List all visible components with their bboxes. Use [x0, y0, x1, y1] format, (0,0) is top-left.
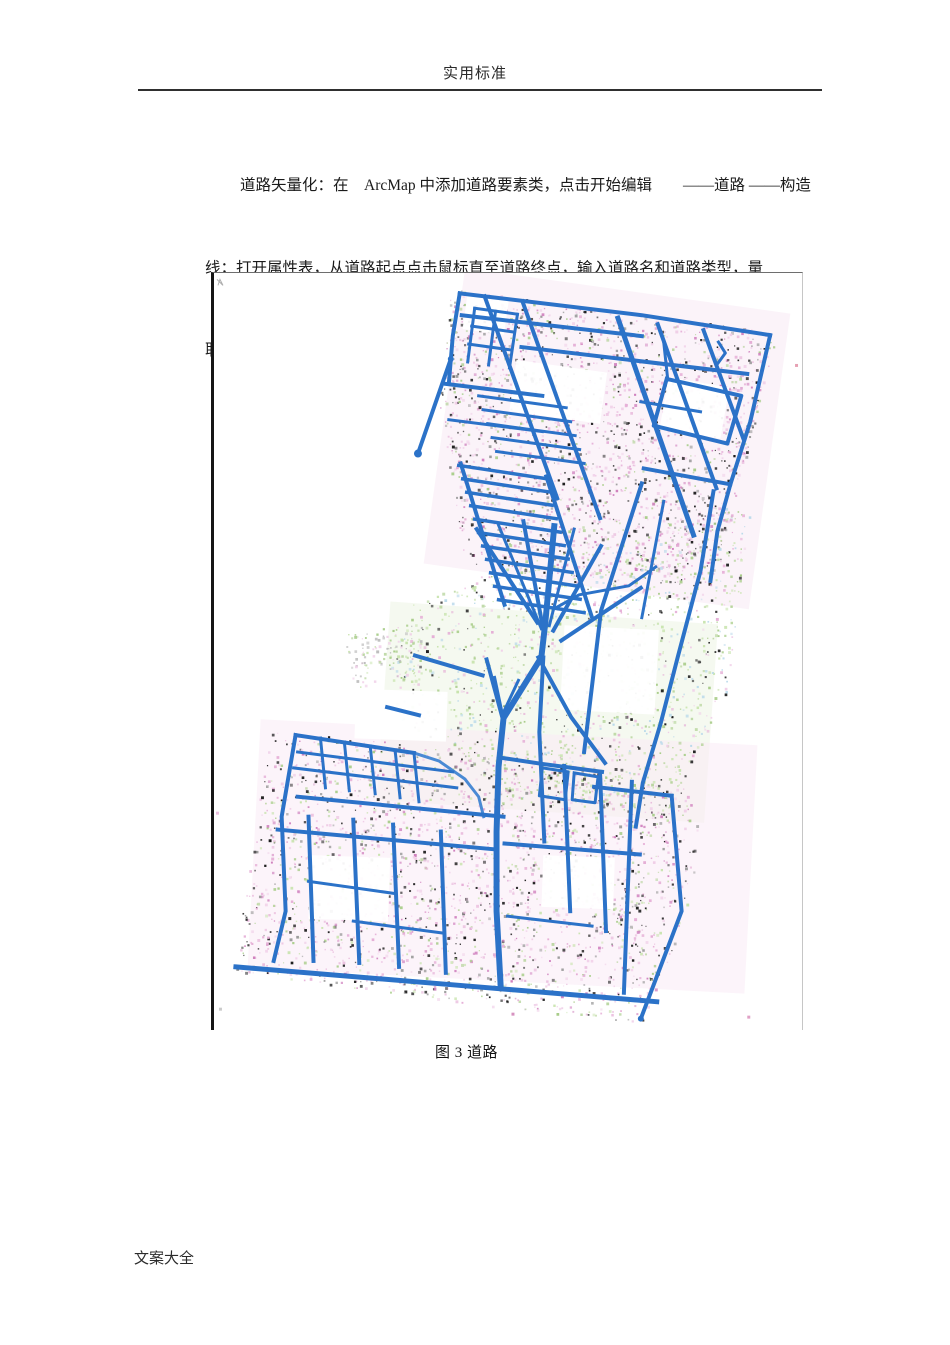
header-rule — [138, 89, 822, 91]
footer-text: 文案大全 — [134, 1247, 194, 1268]
page-header: 实用标准 — [0, 62, 950, 83]
figure-caption: 图 3 道路 — [435, 1041, 498, 1062]
paragraph-line: 道路矢量化：在 ArcMap 中添加道路要素类，点击开始编辑 ——道路 ——构造 — [205, 172, 830, 200]
figure-map-image — [211, 272, 803, 1030]
document-page: 实用标准 道路矢量化：在 ArcMap 中添加道路要素类，点击开始编辑 ——道路… — [0, 0, 950, 1345]
road-map-svg — [214, 273, 802, 1030]
